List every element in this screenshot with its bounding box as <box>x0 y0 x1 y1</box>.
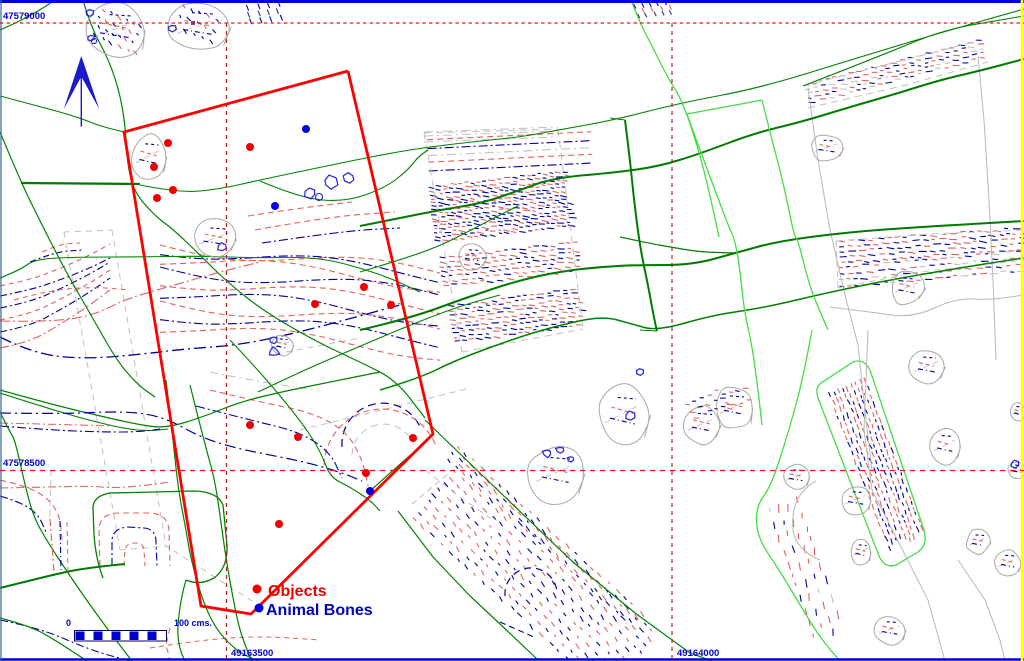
svg-text:49163500: 49163500 <box>231 648 273 659</box>
svg-text:100 cms.: 100 cms. <box>174 618 212 628</box>
svg-text:Objects: Objects <box>268 583 327 600</box>
svg-text:47578500: 47578500 <box>3 458 45 469</box>
svg-text:49164000: 49164000 <box>677 648 719 659</box>
svg-text:47579000: 47579000 <box>3 11 45 22</box>
svg-text:Animal Bones: Animal Bones <box>266 602 373 619</box>
svg-text:0: 0 <box>66 618 71 628</box>
